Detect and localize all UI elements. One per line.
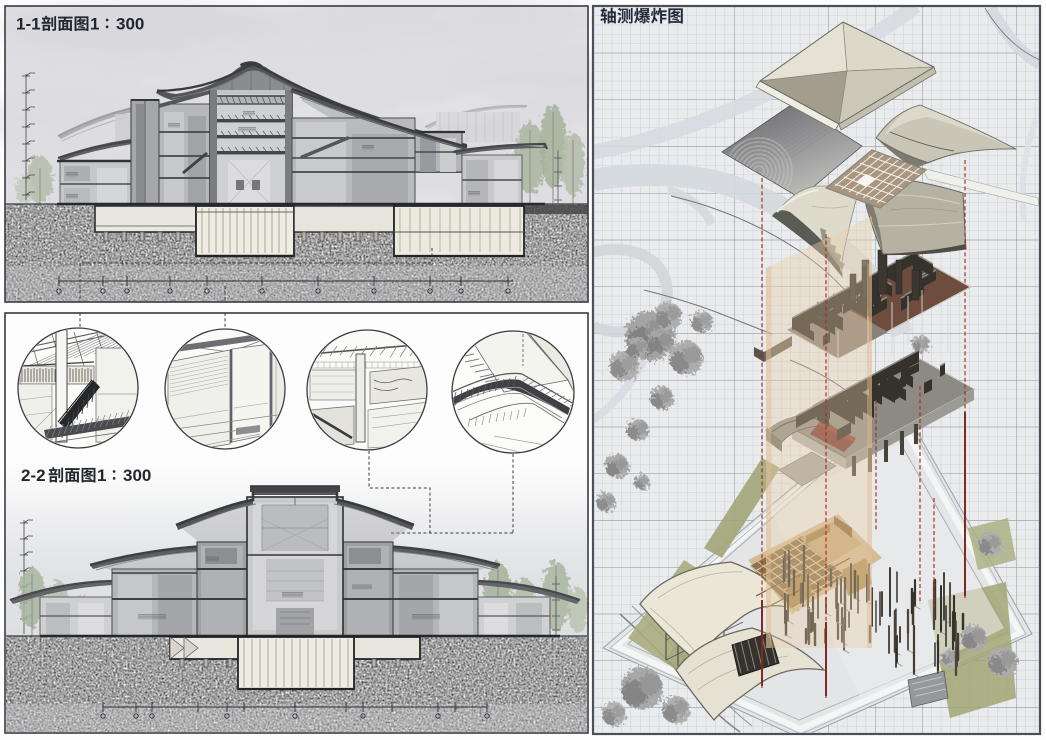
svg-text:1: 1 bbox=[97, 466, 106, 485]
svg-text:2-2: 2-2 bbox=[21, 466, 46, 485]
svg-text:300: 300 bbox=[116, 15, 144, 34]
svg-text:300: 300 bbox=[123, 466, 151, 485]
svg-text:1-1: 1-1 bbox=[16, 15, 41, 34]
svg-text:1: 1 bbox=[90, 15, 99, 34]
